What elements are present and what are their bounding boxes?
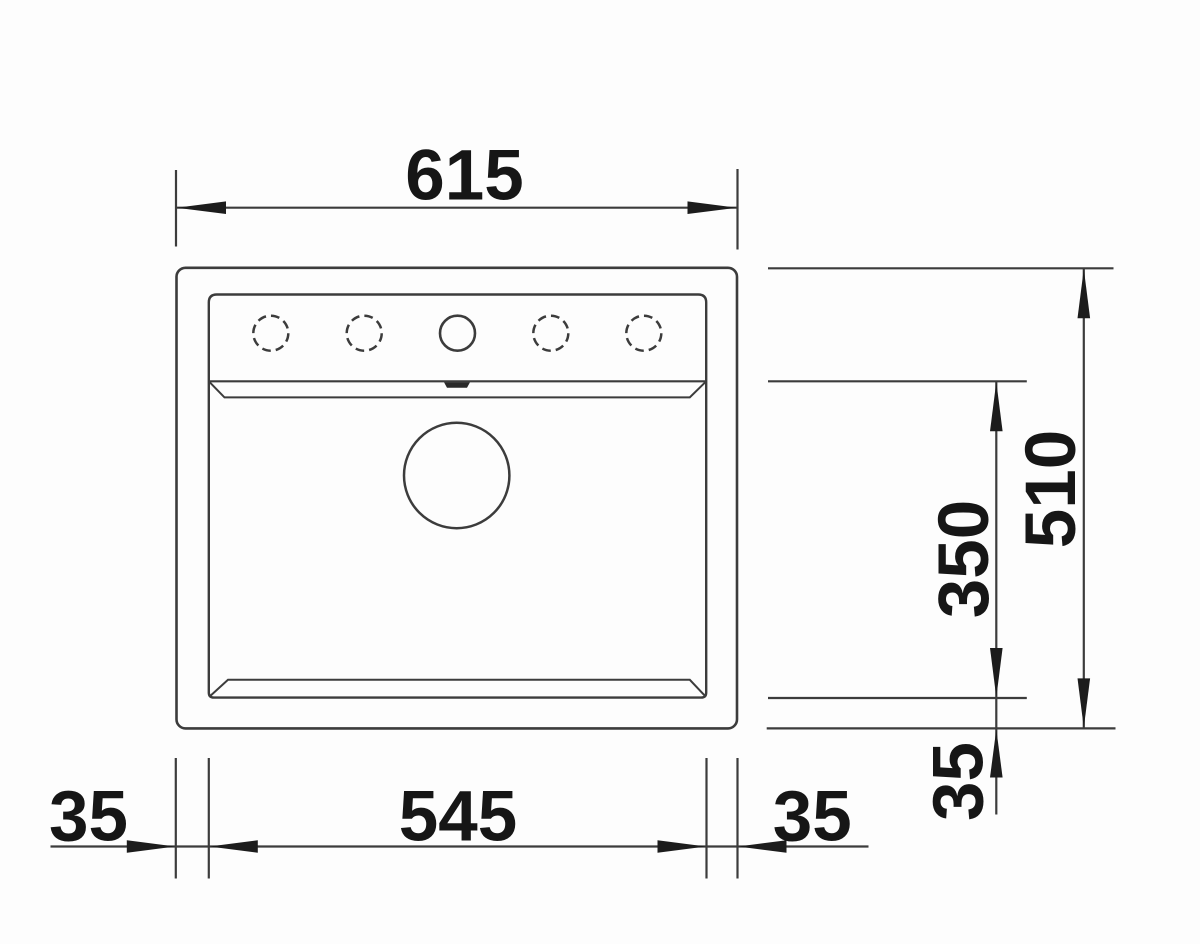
svg-text:510: 510: [1012, 430, 1091, 548]
svg-text:545: 545: [399, 778, 517, 857]
svg-text:35: 35: [49, 778, 128, 857]
svg-text:35: 35: [773, 778, 852, 857]
svg-text:350: 350: [925, 500, 1004, 618]
svg-text:35: 35: [920, 742, 999, 821]
svg-text:615: 615: [405, 137, 523, 216]
